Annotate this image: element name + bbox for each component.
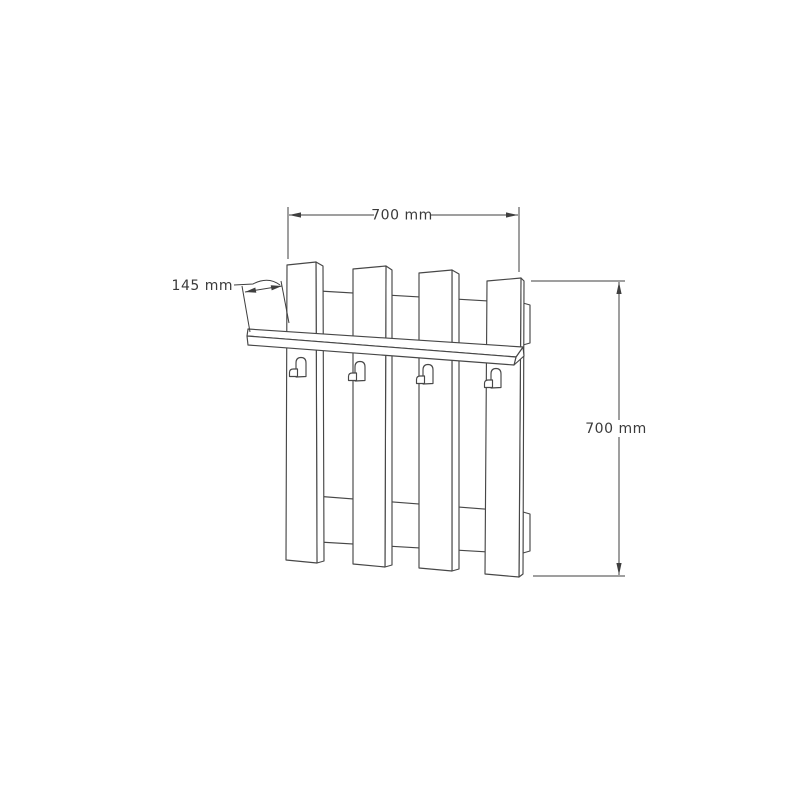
hook-2 — [349, 362, 366, 382]
slat-2-front-face — [353, 266, 386, 567]
slat-3-front-face — [419, 270, 452, 571]
height-arrow-top — [616, 282, 621, 294]
drawing-canvas: 700 mm 700 mm 145 mm — [0, 0, 800, 800]
width-dimension: 700 mm — [288, 207, 519, 272]
depth-dimension-label: 145 mm — [172, 278, 233, 294]
hook-3-base — [417, 376, 425, 384]
slat-3 — [419, 270, 459, 571]
depth-arrow-left — [245, 288, 256, 293]
hook-2-base — [349, 373, 357, 381]
width-arrow-right — [506, 212, 518, 217]
slat-4 — [485, 278, 524, 577]
slat-1 — [286, 262, 324, 563]
depth-arrow-right — [271, 285, 282, 290]
coat-rack — [247, 262, 530, 577]
slat-1-front-face — [286, 262, 317, 563]
slat-3-side-face — [452, 270, 459, 571]
bottom-rail-end-face — [523, 512, 530, 553]
width-arrow-left — [289, 212, 301, 217]
slat-2 — [353, 266, 392, 567]
depth-extension-line-left — [242, 286, 250, 332]
height-dimension-label: 700 mm — [585, 421, 646, 437]
depth-dimension: 145 mm — [172, 278, 289, 332]
hook-4-base — [485, 380, 493, 388]
height-arrow-bottom — [616, 563, 621, 575]
depth-leader-line — [234, 280, 280, 285]
slat-4-front-face — [485, 278, 521, 577]
height-dimension: 700 mm — [531, 281, 647, 576]
hook-1-base — [290, 369, 298, 377]
width-dimension-label: 700 mm — [371, 208, 432, 224]
coat-rack-technical-drawing: 700 mm 700 mm 145 mm — [0, 0, 800, 800]
